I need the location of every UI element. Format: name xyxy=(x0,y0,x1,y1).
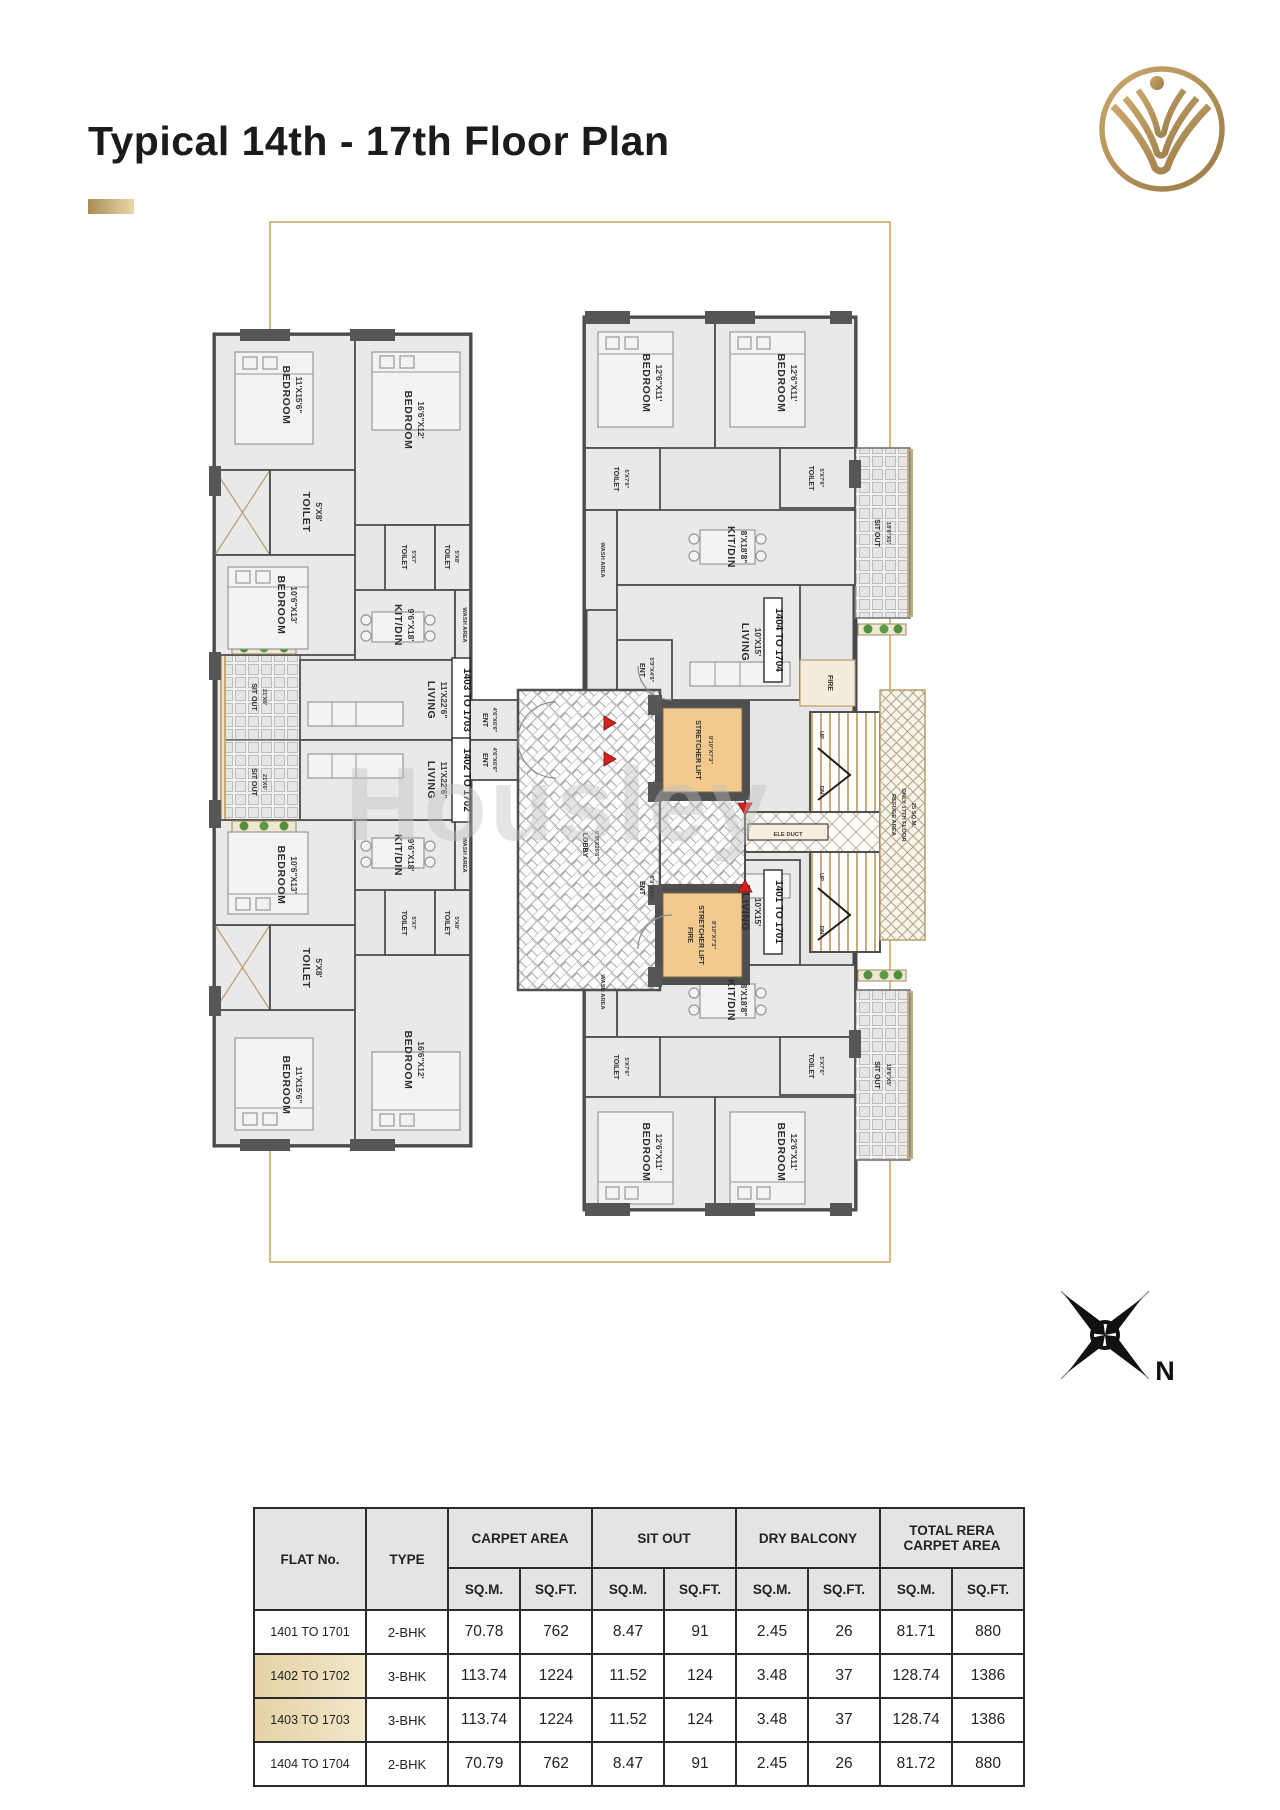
room-label: ENT xyxy=(638,663,645,678)
carpet-sqft-cell: 1224 xyxy=(520,1698,592,1742)
room-label: BEDROOM xyxy=(402,1030,414,1089)
sitout-sqft-cell: 124 xyxy=(664,1654,736,1698)
room-label: BEDROOM xyxy=(280,365,292,424)
flat-no-cell: 1402 TO 1702 xyxy=(254,1654,366,1698)
room-dim: 5'X7'6" xyxy=(623,469,629,488)
room-dim: 11'X15'6" xyxy=(294,1067,304,1104)
floor-plan-page: Typical 14th - 17th Floor Plan xyxy=(0,0,1280,1810)
stair-label: UP xyxy=(818,873,824,881)
room-dim: 18'6"X5' xyxy=(885,522,891,545)
room-label: WASH AREA xyxy=(599,974,605,1010)
room-label: TOILET xyxy=(443,911,450,936)
room-label: LIVING xyxy=(739,623,751,662)
total-sqm-cell: 81.71 xyxy=(880,1610,952,1654)
total-sqft-cell: 880 xyxy=(952,1610,1024,1654)
fire-label: FIRE xyxy=(826,675,833,691)
refuge-label: REFUGE AREA xyxy=(890,794,896,837)
table-row: 1402 TO 1702 3-BHK 113.74 1224 11.52 124… xyxy=(254,1654,1024,1698)
room-dim: 5'9"X4'6" xyxy=(648,657,654,682)
refuge-label: ONLY 17TH FLOOR xyxy=(900,788,906,842)
subheader-sqft: SQ.FT. xyxy=(664,1568,736,1610)
room-dim: 21'X6' xyxy=(261,774,267,791)
sitout-sqft-cell: 91 xyxy=(664,1610,736,1654)
room-label: SIT OUT xyxy=(250,683,257,711)
flat-no-cell: 1403 TO 1703 xyxy=(254,1698,366,1742)
room-label: WASH AREA xyxy=(461,607,467,643)
carpet-sqm-cell: 70.78 xyxy=(448,1610,520,1654)
type-cell: 3-BHK xyxy=(366,1698,448,1742)
room-label: TOILET xyxy=(612,467,619,492)
carpet-sqft-cell: 762 xyxy=(520,1610,592,1654)
stair-label: DN xyxy=(818,786,824,794)
room-dim: 11'X15'6" xyxy=(294,377,304,414)
subheader-sqft: SQ.FT. xyxy=(808,1568,880,1610)
carpet-sqft-cell: 762 xyxy=(520,1742,592,1786)
refuge-label: 25 SQ.M. xyxy=(910,803,916,828)
room-label: TOILET xyxy=(400,911,407,936)
room-dim: 5'X7' xyxy=(410,916,416,930)
room-label: TOILET xyxy=(612,1055,619,1080)
room-label: BEDROOM xyxy=(280,1055,292,1114)
carpet-sqft-cell: 1224 xyxy=(520,1654,592,1698)
area-statement-table: FLAT No. TYPE CARPET AREA SIT OUT DRY BA… xyxy=(253,1507,1025,1787)
room-label: TOILET xyxy=(807,1054,814,1079)
room-dim: 9'6"X18' xyxy=(406,609,416,642)
lift-label: FIRE xyxy=(686,927,693,943)
room-label: BEDROOM xyxy=(640,1122,652,1181)
room-dim: 10'X15' xyxy=(753,628,763,657)
carpet-sqm-cell: 70.79 xyxy=(448,1742,520,1786)
room-dim: 5'X7'6" xyxy=(623,1057,629,1076)
room-label: WASH AREA xyxy=(599,542,605,578)
room-dim: 4'6"X6'6" xyxy=(491,707,497,732)
room-label: BEDROOM xyxy=(275,845,287,904)
room-dim: 5'9"X4'6" xyxy=(648,875,654,900)
col-header-dry-balcony: DRY BALCONY xyxy=(736,1508,880,1568)
room-label: BEDROOM xyxy=(640,353,652,412)
room-dim: 5'X7'6" xyxy=(818,1056,824,1075)
sitout-sqm-cell: 11.52 xyxy=(592,1698,664,1742)
room-dim: 11'X22'6" xyxy=(439,682,449,719)
table-row: 1401 TO 1701 2-BHK 70.78 762 8.47 91 2.4… xyxy=(254,1610,1024,1654)
carpet-sqm-cell: 113.74 xyxy=(448,1654,520,1698)
room-label: KIT/DIN xyxy=(392,604,404,646)
room-dim: 18'6"X5' xyxy=(885,1064,891,1087)
subheader-sqm: SQ.M. xyxy=(736,1568,808,1610)
room-dim: 5'X8' xyxy=(314,502,324,521)
type-cell: 2-BHK xyxy=(366,1610,448,1654)
subheader-sqm: SQ.M. xyxy=(592,1568,664,1610)
sitout-sqm-cell: 11.52 xyxy=(592,1654,664,1698)
table-row: 1404 TO 1704 2-BHK 70.79 762 8.47 91 2.4… xyxy=(254,1742,1024,1786)
room-label: SIT OUT xyxy=(873,519,880,547)
room-label: BEDROOM xyxy=(775,1122,787,1181)
dry-sqft-cell: 26 xyxy=(808,1610,880,1654)
room-dim: 12'6"X11' xyxy=(654,1134,664,1171)
lift-label: STRETCHER LIFT xyxy=(697,905,704,965)
total-sqm-cell: 128.74 xyxy=(880,1698,952,1742)
subheader-sqm: SQ.M. xyxy=(880,1568,952,1610)
stair-label: DN xyxy=(818,926,824,934)
type-cell: 2-BHK xyxy=(366,1742,448,1786)
room-label: LIVING xyxy=(425,681,437,720)
subheader-sqm: SQ.M. xyxy=(448,1568,520,1610)
flat-no-cell: 1404 TO 1704 xyxy=(254,1742,366,1786)
room-label: LIVING xyxy=(739,893,751,932)
dry-sqft-cell: 26 xyxy=(808,1742,880,1786)
sitout-sqm-cell: 8.47 xyxy=(592,1610,664,1654)
room-label: KIT/DIN xyxy=(725,979,737,1021)
room-label: BEDROOM xyxy=(275,575,287,634)
total-sqm-cell: 81.72 xyxy=(880,1742,952,1786)
sitout-sqft-cell: 91 xyxy=(664,1742,736,1786)
room-label: TOILET xyxy=(807,466,814,491)
dry-sqft-cell: 37 xyxy=(808,1698,880,1742)
room-dim: 16'6"X12' xyxy=(416,401,426,438)
room-dim: 5'X7' xyxy=(410,550,416,564)
table-row: 1403 TO 1703 3-BHK 113.74 1224 11.52 124… xyxy=(254,1698,1024,1742)
col-header-type: TYPE xyxy=(366,1508,448,1610)
subheader-sqft: SQ.FT. xyxy=(952,1568,1024,1610)
room-dim: 5'X7'6" xyxy=(818,468,824,487)
subheader-sqft: SQ.FT. xyxy=(520,1568,592,1610)
floor-plan-drawing: BEDROOM 11'X15'6" BEDROOM 16'6"X12' TOIL… xyxy=(0,0,1280,1460)
room-dim: 8'X18'8" xyxy=(739,531,749,564)
room-dim: 10'6"X13' xyxy=(289,856,299,893)
room-dim: 12'6"X11' xyxy=(654,365,664,402)
dry-sqm-cell: 2.45 xyxy=(736,1610,808,1654)
room-dim: 21'X6' xyxy=(261,689,267,706)
total-sqft-cell: 1386 xyxy=(952,1698,1024,1742)
dry-sqft-cell: 37 xyxy=(808,1654,880,1698)
total-sqm-cell: 128.74 xyxy=(880,1654,952,1698)
room-label: TOILET xyxy=(443,545,450,570)
unit-number: 1404 TO 1704 xyxy=(773,608,784,672)
room-label: SIT OUT xyxy=(873,1061,880,1089)
watermark-text: Housley xyxy=(345,747,771,863)
unit-number: 1403 TO 1703 xyxy=(461,668,472,732)
stair-label: UP xyxy=(818,731,824,739)
col-header-sit-out: SIT OUT xyxy=(592,1508,736,1568)
room-label: TOILET xyxy=(300,948,312,989)
col-header-carpet-area: CARPET AREA xyxy=(448,1508,592,1568)
carpet-sqm-cell: 113.74 xyxy=(448,1698,520,1742)
room-dim: 8'X18'8" xyxy=(739,984,749,1017)
room-label: BEDROOM xyxy=(402,390,414,449)
dry-sqm-cell: 3.48 xyxy=(736,1698,808,1742)
room-dim: 5'X8' xyxy=(453,916,459,930)
type-cell: 3-BHK xyxy=(366,1654,448,1698)
room-dim: 16'6"X12' xyxy=(416,1041,426,1078)
dry-sqm-cell: 3.48 xyxy=(736,1654,808,1698)
total-sqft-cell: 880 xyxy=(952,1742,1024,1786)
room-label: KIT/DIN xyxy=(725,526,737,568)
room-dim: 12'6"X11' xyxy=(789,1134,799,1171)
left-wing xyxy=(215,335,518,1145)
room-label: BEDROOM xyxy=(775,353,787,412)
col-header-flat-no: FLAT No. xyxy=(254,1508,366,1610)
room-dim: 12'6"X11' xyxy=(789,365,799,402)
room-dim: 5'X8' xyxy=(453,550,459,564)
room-dim: 5'X8' xyxy=(314,958,324,977)
unit-number: 1401 TO 1701 xyxy=(773,880,784,944)
room-dim: 10'6"X13' xyxy=(289,586,299,623)
room-label: TOILET xyxy=(300,492,312,533)
compass-icon: N xyxy=(1017,1247,1192,1422)
north-label: N xyxy=(1155,1356,1175,1386)
room-label: SIT OUT xyxy=(250,768,257,796)
total-sqft-cell: 1386 xyxy=(952,1654,1024,1698)
room-label: ENT xyxy=(638,881,645,896)
col-header-total-rera: TOTAL RERA CARPET AREA xyxy=(880,1508,1024,1568)
sitout-sqm-cell: 8.47 xyxy=(592,1742,664,1786)
duct-label: ELE DUCT xyxy=(774,832,803,838)
sitout-sqft-cell: 124 xyxy=(664,1698,736,1742)
room-label: TOILET xyxy=(400,545,407,570)
flat-no-cell: 1401 TO 1701 xyxy=(254,1610,366,1654)
dry-sqm-cell: 2.45 xyxy=(736,1742,808,1786)
room-label: ENT xyxy=(481,713,488,728)
room-dim: 10'X15' xyxy=(753,898,763,927)
lift-dim: 9'10"X7'3" xyxy=(710,921,716,949)
